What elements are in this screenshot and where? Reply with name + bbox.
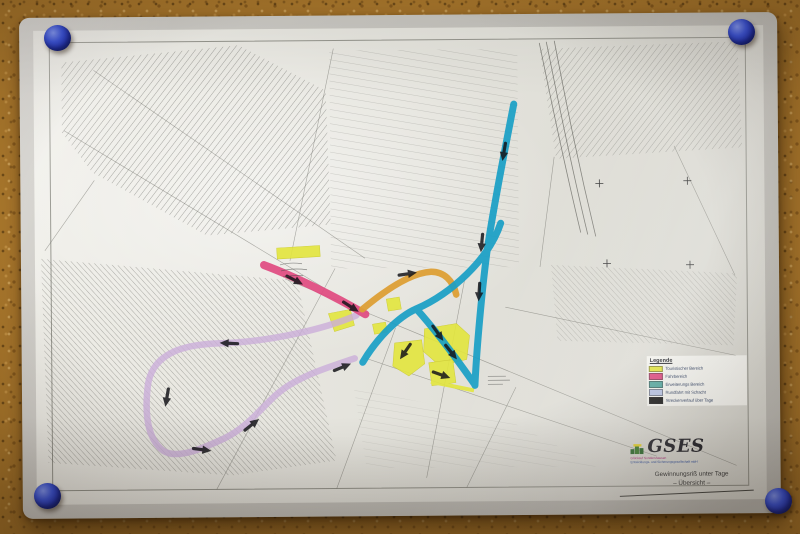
legend: Legende Touristischer Bereich Fahrbereic… bbox=[647, 355, 747, 406]
legend-label: Fahrbereich bbox=[665, 374, 687, 379]
survey-cross-marks bbox=[595, 177, 694, 270]
legend-label: Touristischer Bereich bbox=[665, 366, 703, 371]
mine-map-drawing bbox=[33, 25, 767, 505]
legend-title: Legende bbox=[650, 357, 745, 364]
map-subtitle: – Übersicht – bbox=[621, 479, 763, 487]
map-title: Gewinnungsriß unter Tage bbox=[621, 470, 763, 478]
legend-swatch bbox=[649, 389, 663, 396]
push-pin-top-left bbox=[44, 25, 71, 51]
legend-swatch bbox=[649, 381, 663, 388]
map-paper: Legende Touristischer Bereich Fahrbereic… bbox=[33, 25, 767, 505]
legend-swatch bbox=[649, 397, 663, 404]
highlighted-map-label bbox=[277, 245, 321, 259]
title-block: GSES Glückauf Sondershausen Entwicklungs… bbox=[620, 436, 762, 494]
push-pin-bottom-left bbox=[34, 483, 61, 509]
legend-row: Streckenverlauf über Tage bbox=[649, 397, 745, 404]
gses-logo-subline2: Entwicklungs- und Sicherungsgesellschaft… bbox=[631, 459, 755, 464]
legend-row: Erweiterungs Bereich bbox=[649, 381, 745, 388]
photo-of-corkboard: { "scene": { "description": "Laminated u… bbox=[0, 0, 800, 534]
legend-label: Erweiterungs Bereich bbox=[665, 382, 704, 387]
gses-logo-icon bbox=[630, 442, 644, 454]
legend-swatch bbox=[649, 365, 663, 372]
legend-row: Fahrbereich bbox=[649, 373, 745, 380]
push-pin-bottom-right bbox=[765, 488, 792, 514]
legend-swatch bbox=[649, 373, 663, 380]
push-pin-top-right bbox=[728, 19, 755, 45]
gses-logo: GSES bbox=[630, 436, 762, 454]
legend-label: Streckenverlauf über Tage bbox=[666, 398, 714, 403]
gses-logo-text: GSES bbox=[647, 438, 704, 454]
legend-row: Touristischer Bereich bbox=[649, 365, 745, 372]
legend-label: Rundfahrt mit Schacht bbox=[665, 390, 705, 395]
map-sheet-laminated: Legende Touristischer Bereich Fahrbereic… bbox=[19, 12, 781, 519]
legend-row: Rundfahrt mit Schacht bbox=[649, 389, 745, 396]
